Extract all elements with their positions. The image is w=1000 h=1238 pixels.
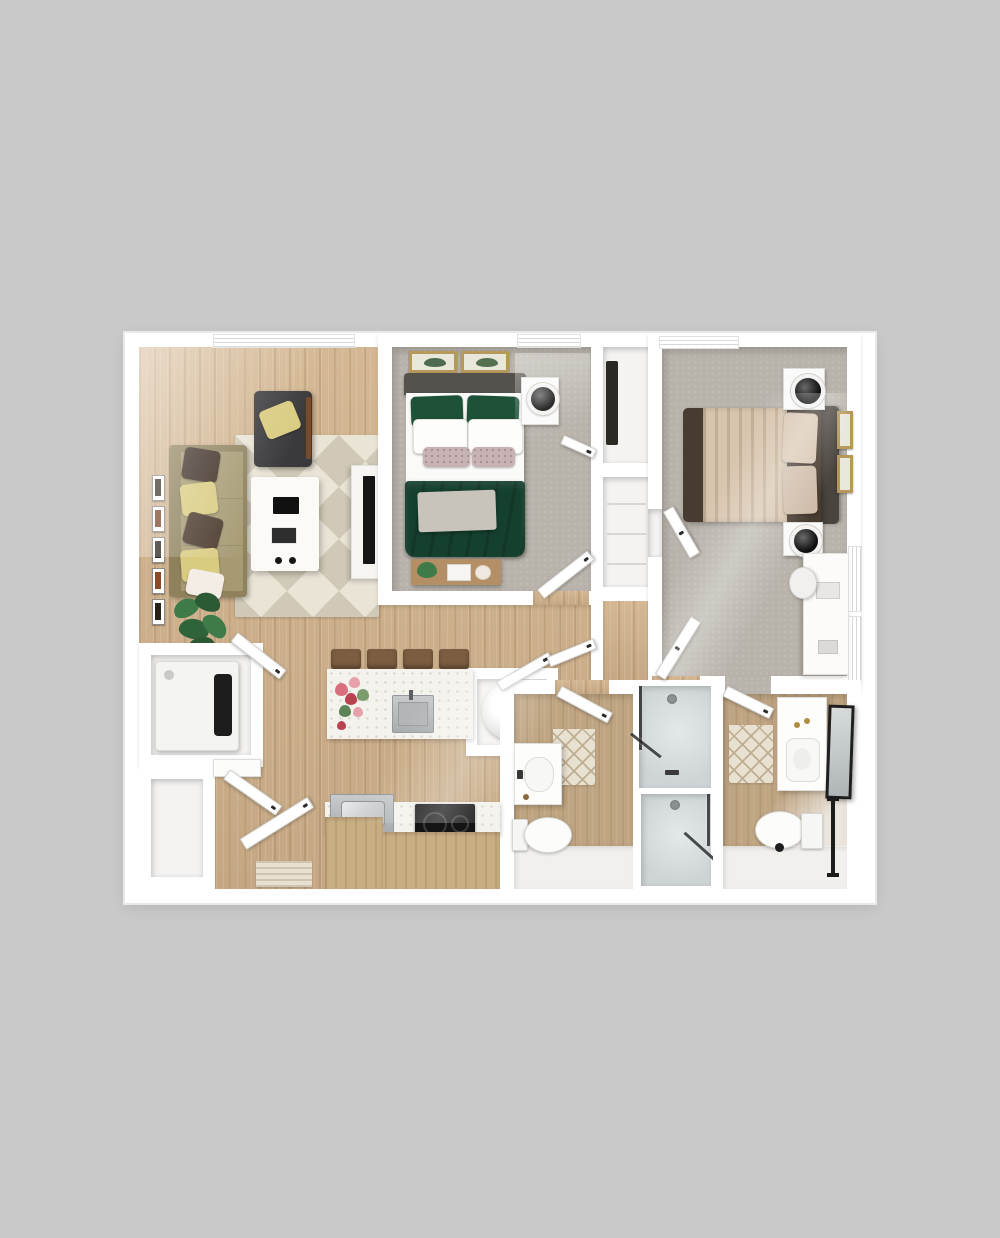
kitchen-cabinet-left [325, 817, 383, 889]
bathroom2-vanity [777, 697, 827, 791]
washer-door-opening [214, 674, 232, 736]
closet-hanging-clothes [606, 361, 618, 445]
picture-art [476, 358, 498, 367]
vanity-soap [523, 794, 529, 800]
closet-shelf [607, 533, 646, 535]
shower-glass [707, 794, 710, 846]
bedroom2-window-top [659, 336, 739, 349]
bench-books [447, 564, 471, 581]
armchair-pillow [258, 399, 303, 440]
coffee-table-cup [289, 557, 296, 564]
washer-knob [164, 670, 174, 680]
island-faucet [409, 690, 413, 700]
bed-accent-pillow [472, 447, 515, 467]
shower-head [670, 800, 680, 810]
bedroom1-bench [411, 559, 501, 585]
bedroom2-window-right [848, 616, 862, 682]
flower [337, 721, 346, 730]
frame-art [155, 479, 161, 496]
bathroom2-floor-drain [775, 843, 784, 852]
bed2-pillow [782, 465, 818, 514]
flower [353, 707, 363, 717]
closet-shelf [607, 503, 646, 505]
coffee-table [251, 477, 319, 571]
flower-leaf [357, 689, 369, 701]
bathroom2-shower [641, 794, 711, 886]
accent-armchair [254, 391, 312, 467]
kitchen-island [327, 669, 473, 739]
floor-plan [125, 333, 875, 903]
shower-faucet [665, 770, 679, 775]
bar-stool [331, 649, 361, 669]
closet-b-interior [603, 477, 650, 587]
towel-bar-cap [827, 873, 839, 877]
washer-dryer [155, 661, 239, 751]
bedroom2-picture [837, 411, 853, 449]
entry-door-mat [256, 861, 312, 887]
bathroom1-toilet-bowl [524, 817, 572, 853]
bar-stool [367, 649, 397, 669]
flower [349, 677, 360, 688]
tv-screen [363, 476, 375, 564]
living-room-window [213, 334, 355, 348]
coat-closet-interior [151, 779, 203, 877]
towel-bar-cap [827, 797, 839, 801]
frame-art [155, 603, 161, 620]
bedroom1-lamp [527, 383, 559, 415]
closet-a-interior [603, 347, 650, 463]
island-sink [392, 695, 434, 733]
wall-frame [152, 599, 165, 625]
bathroom2-faucet-gold [804, 718, 810, 724]
floor-plan-page: { "scene": { "kind": "3d-rendered-floor-… [0, 0, 1000, 1238]
coffee-table-cup [275, 557, 282, 564]
desk-chair [789, 567, 817, 599]
bed-throw-blanket [417, 490, 496, 533]
closet-b-opening [648, 509, 662, 557]
bedroom2-window-right [848, 546, 862, 612]
armchair-wood-arm [306, 397, 311, 459]
frame-art [155, 572, 161, 589]
bed-accent-pillow [423, 447, 470, 467]
bathroom1-floor-light [514, 846, 633, 889]
closet-shelf [607, 563, 646, 565]
bathroom1-vanity [514, 743, 562, 805]
wall-frame [152, 506, 165, 532]
bathroom2-mat [729, 725, 773, 783]
frame-art [155, 541, 161, 558]
bedroom1-picture [409, 351, 457, 373]
flower [345, 693, 357, 705]
bar-stool [403, 649, 433, 669]
bedroom1-window [517, 334, 581, 348]
bathroom2-towel-bar [831, 799, 835, 875]
gallery-wall [152, 475, 165, 633]
coffee-table-book [271, 527, 297, 544]
bedroom2-bed [683, 406, 839, 524]
picture-art [424, 358, 446, 367]
desk-notepad [818, 640, 838, 654]
shower-head [667, 694, 677, 704]
bed2-pillow [782, 412, 819, 464]
frame-art [155, 510, 161, 527]
bathroom1-sink [524, 757, 554, 792]
wall-frame [152, 537, 165, 563]
bathroom2-sink-bowl [793, 748, 811, 770]
bathroom2-toilet-tank [801, 813, 823, 849]
wall-frame [152, 475, 165, 501]
plant-leaf [193, 589, 224, 615]
bed2-blanket [703, 408, 787, 522]
desk-laptop [816, 582, 840, 599]
sofa [169, 445, 247, 597]
bench-plant [417, 562, 437, 578]
bar-stool [439, 649, 469, 669]
bed2-headboard [819, 406, 839, 524]
bench-bowl [475, 565, 491, 580]
flower-leaf [339, 705, 351, 717]
bedroom2-picture [837, 455, 853, 493]
sofa-pillow-yellow [179, 481, 219, 517]
cooktop-burner [451, 815, 469, 833]
wall-frame [152, 568, 165, 594]
bathroom2-faucet-gold [794, 722, 800, 728]
sofa-pillow-brown [181, 446, 222, 483]
hall-nook-floor [603, 601, 650, 685]
bathroom1-faucet [517, 770, 523, 779]
bathroom2-leaning-mirror [825, 705, 854, 800]
coffee-table-book [273, 497, 299, 514]
bedroom2-lamp-top [791, 374, 825, 408]
island-sink-basin [398, 702, 428, 726]
bedroom1-picture [461, 351, 509, 373]
bedroom1-bed [404, 373, 526, 557]
bathroom2-floor-light [723, 846, 847, 889]
bed-headboard [404, 373, 526, 395]
bathroom1-shower [639, 686, 711, 788]
